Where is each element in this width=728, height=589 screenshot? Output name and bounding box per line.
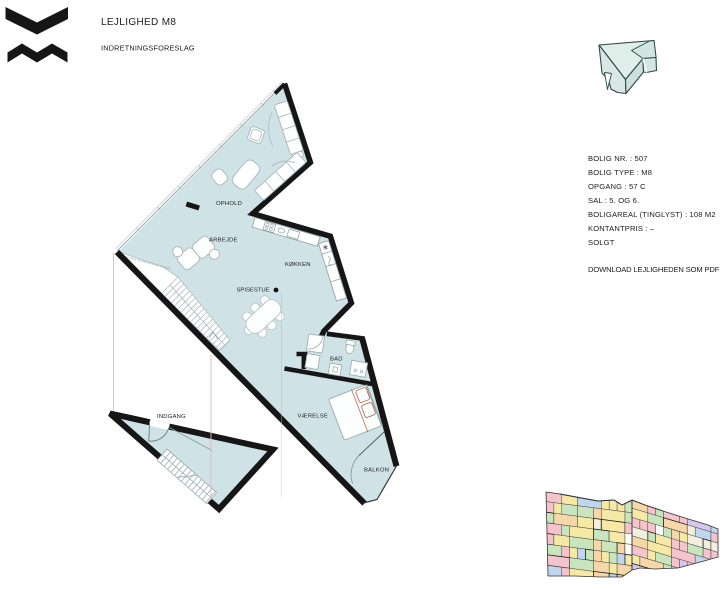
- svg-text:INDGANG: INDGANG: [157, 414, 186, 420]
- svg-text:BAD: BAD: [330, 357, 343, 363]
- svg-text:BALKON: BALKON: [364, 468, 389, 474]
- svg-text:BOLIGAREAL (TINGLYST) : 108 M2: BOLIGAREAL (TINGLYST) : 108 M2: [588, 210, 716, 219]
- svg-text:BOLIG NR. : 507: BOLIG NR. : 507: [588, 154, 648, 163]
- svg-text:KØKKEN: KØKKEN: [285, 262, 311, 268]
- svg-text:SPISESTUE: SPISESTUE: [237, 288, 270, 294]
- svg-text:SOLGT: SOLGT: [588, 238, 615, 247]
- svg-text:SAL : 5. OG 6.: SAL : 5. OG 6.: [588, 196, 639, 205]
- svg-text:KONTANTPRIS : –: KONTANTPRIS : –: [588, 224, 655, 233]
- svg-text:OPHOLD: OPHOLD: [216, 201, 242, 207]
- svg-text:VÆRELSE: VÆRELSE: [298, 414, 329, 420]
- svg-text:OPGANG : 57 C: OPGANG : 57 C: [588, 182, 646, 191]
- svg-text:BOLIG TYPE : M8: BOLIG TYPE : M8: [588, 168, 652, 177]
- svg-text:ARBEJDE: ARBEJDE: [209, 238, 238, 244]
- svg-text:INDRETNINGSFORESLAG: INDRETNINGSFORESLAG: [101, 44, 195, 53]
- svg-text:LEJLIGHED M8: LEJLIGHED M8: [101, 17, 176, 28]
- svg-text:DOWNLOAD LEJLIGHEDEN SOM PDF: DOWNLOAD LEJLIGHEDEN SOM PDF: [588, 265, 720, 274]
